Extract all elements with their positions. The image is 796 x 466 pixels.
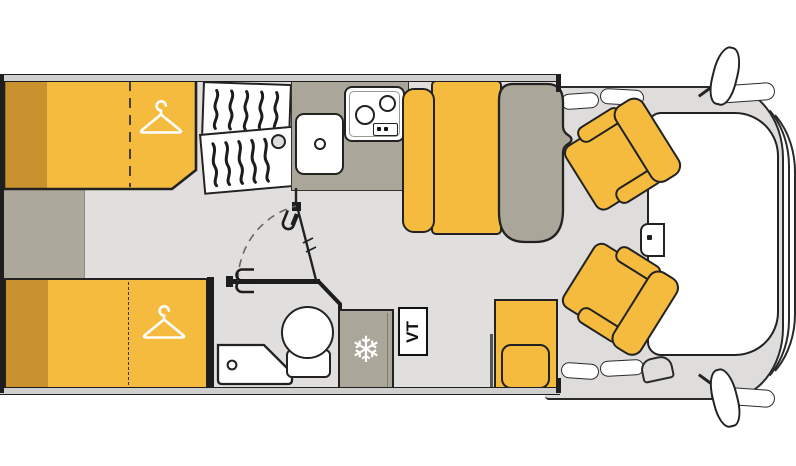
wall-jog — [556, 74, 561, 92]
wall-rear — [0, 74, 4, 393]
towel-hook-icon — [237, 270, 255, 293]
fridge: ❄ — [338, 309, 394, 392]
bench-cushion — [501, 344, 550, 389]
wall-top — [0, 74, 560, 82]
entry-bench — [494, 299, 558, 392]
door-handle-icon — [281, 210, 298, 230]
bathroom — [0, 0, 796, 466]
snowflake-icon: ❄ — [351, 333, 381, 369]
motorhome-floorplan: ❄ TV — [0, 0, 796, 466]
toilet — [281, 306, 334, 359]
wall-stub — [490, 334, 493, 388]
wall-jog — [556, 378, 561, 393]
bathroom-wall-left — [207, 277, 214, 389]
tv-label: TV — [403, 321, 423, 343]
wall-bottom — [0, 387, 560, 395]
fridge-door-line — [387, 313, 388, 388]
tv-unit: TV — [398, 307, 428, 356]
bathroom-door — [298, 210, 316, 280]
shower-tray — [218, 345, 292, 384]
